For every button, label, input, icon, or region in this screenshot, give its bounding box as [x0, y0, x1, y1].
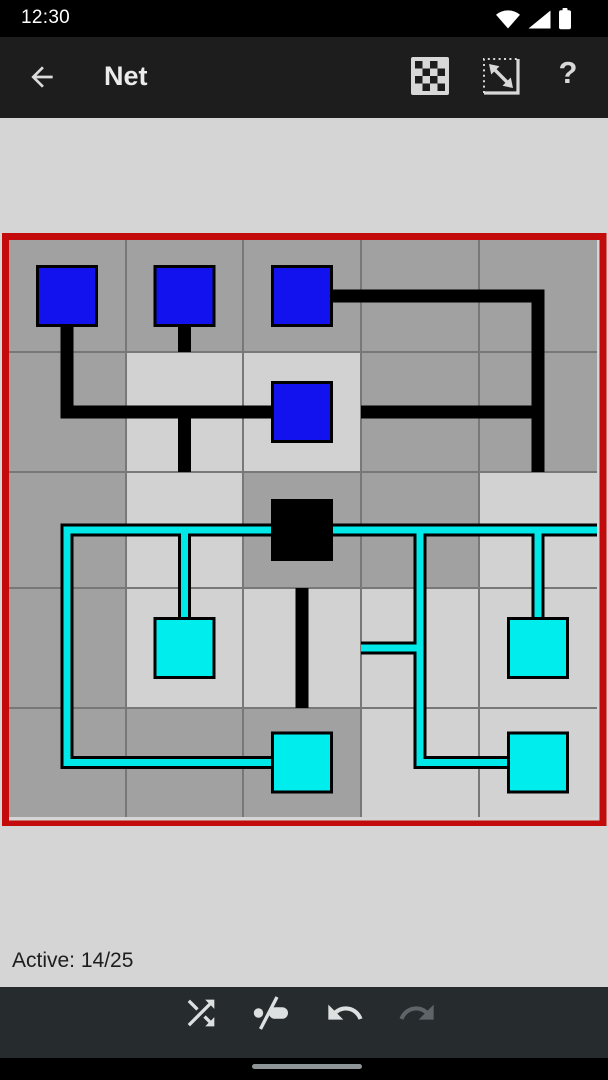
endpoint-square-cyan[interactable] — [273, 733, 332, 792]
resize-diagonal-icon — [482, 57, 520, 95]
bottom-toolbar — [0, 987, 608, 1058]
wire-joint — [414, 406, 427, 419]
wire-joint-powered — [417, 759, 424, 766]
app-bar: Net ? — [0, 37, 608, 118]
battery-icon — [558, 8, 572, 30]
wire-joint — [296, 642, 309, 655]
status-icons — [495, 8, 572, 30]
mode-toggle-button[interactable] — [251, 993, 291, 1033]
source-square[interactable] — [271, 499, 333, 561]
home-indicator[interactable] — [252, 1064, 362, 1069]
endpoint-square-blue[interactable] — [155, 267, 214, 326]
shuffle-arrows-icon — [181, 993, 221, 1033]
wire-joint-powered — [64, 645, 71, 652]
wire-joint-powered — [64, 527, 71, 534]
game-type-button[interactable] — [411, 57, 449, 95]
net-board[interactable] — [2, 233, 607, 826]
wire-joint-powered — [64, 759, 71, 766]
redo-button[interactable] — [397, 993, 437, 1033]
wire-joint — [178, 406, 191, 419]
endpoint-square-cyan[interactable] — [509, 733, 568, 792]
active-status: Active: 14/25 — [12, 949, 133, 973]
wifi-icon — [495, 9, 521, 29]
arrow-left-icon — [26, 61, 58, 93]
checkerboard-icon — [411, 57, 449, 95]
status-bar: 12:30 — [0, 0, 608, 37]
wire-joint-powered — [417, 527, 424, 534]
undo-arrow-icon — [325, 993, 365, 1033]
endpoint-square-cyan[interactable] — [509, 619, 568, 678]
shuffle-button[interactable] — [181, 993, 221, 1033]
wire-joint — [532, 290, 545, 303]
page-title: Net — [104, 61, 148, 92]
undo-button[interactable] — [325, 993, 365, 1033]
help-button[interactable]: ? — [551, 51, 585, 95]
wire-joint-powered — [417, 645, 424, 652]
cellular-signal-icon — [528, 10, 551, 29]
endpoint-square-blue[interactable] — [273, 267, 332, 326]
status-time: 12:30 — [21, 7, 70, 29]
phone-screen: 12:30 Net — [0, 0, 608, 1080]
redo-arrow-icon — [397, 993, 437, 1033]
resize-button[interactable] — [482, 57, 520, 95]
wire-joint — [61, 406, 74, 419]
endpoint-square-blue[interactable] — [38, 267, 97, 326]
wire-joint — [414, 290, 427, 303]
wire-joint-powered — [181, 527, 188, 534]
dot-slash-pill-icon — [251, 993, 291, 1033]
endpoint-square-blue[interactable] — [273, 383, 332, 442]
wire-joint — [532, 406, 545, 419]
game-area: Active: 14/25 — [0, 118, 608, 987]
wire-joint-powered — [535, 527, 542, 534]
back-button[interactable] — [26, 61, 58, 93]
navigation-bar — [0, 1058, 608, 1080]
wire-joint-powered — [181, 759, 188, 766]
endpoint-square-cyan[interactable] — [155, 619, 214, 678]
